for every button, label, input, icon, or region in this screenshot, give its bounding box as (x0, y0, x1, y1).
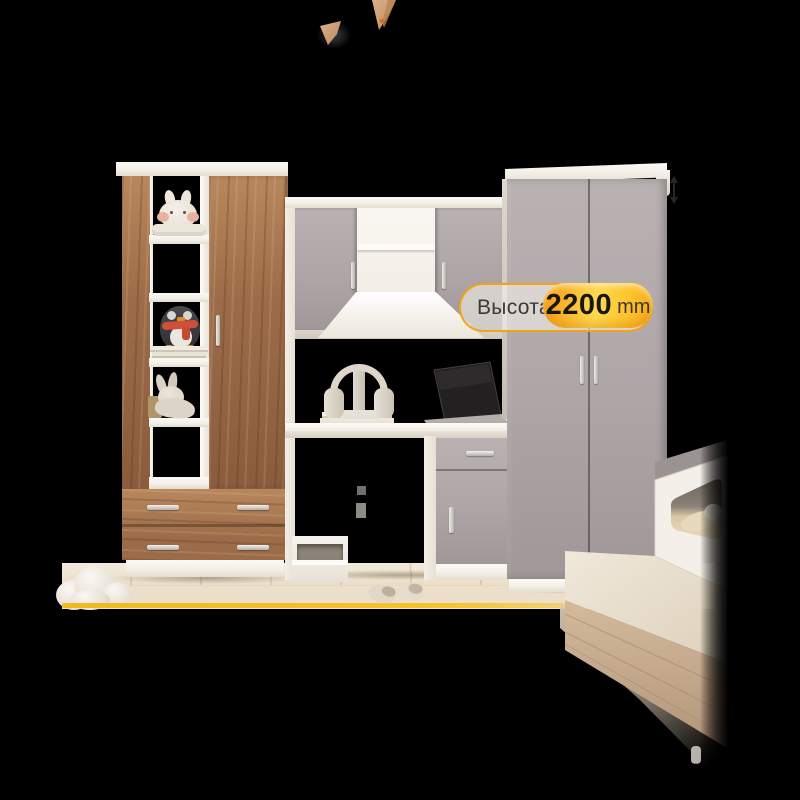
garland-fragments (308, 0, 408, 52)
height-badge-value: 2200 (546, 289, 613, 322)
dimension-arrow-head-up (670, 176, 678, 183)
dimension-arrow-icon (664, 176, 684, 204)
dimension-arrow-head-down (670, 197, 678, 204)
bed-leg (691, 746, 701, 764)
height-badge-label: Высота (477, 297, 551, 318)
bed (0, 0, 800, 800)
slipper-right (395, 581, 425, 603)
bed-leg-shadow (685, 763, 707, 769)
slippers (364, 578, 434, 610)
slipper-left (366, 582, 398, 606)
height-badge-value-pill: 2200 mm (543, 283, 653, 328)
height-badge-unit: mm (617, 293, 650, 319)
height-badge: Высота 2200 mm (459, 283, 653, 332)
garland-fragment-dot (380, 19, 385, 24)
scene: Высота 2200 mm (0, 0, 800, 800)
